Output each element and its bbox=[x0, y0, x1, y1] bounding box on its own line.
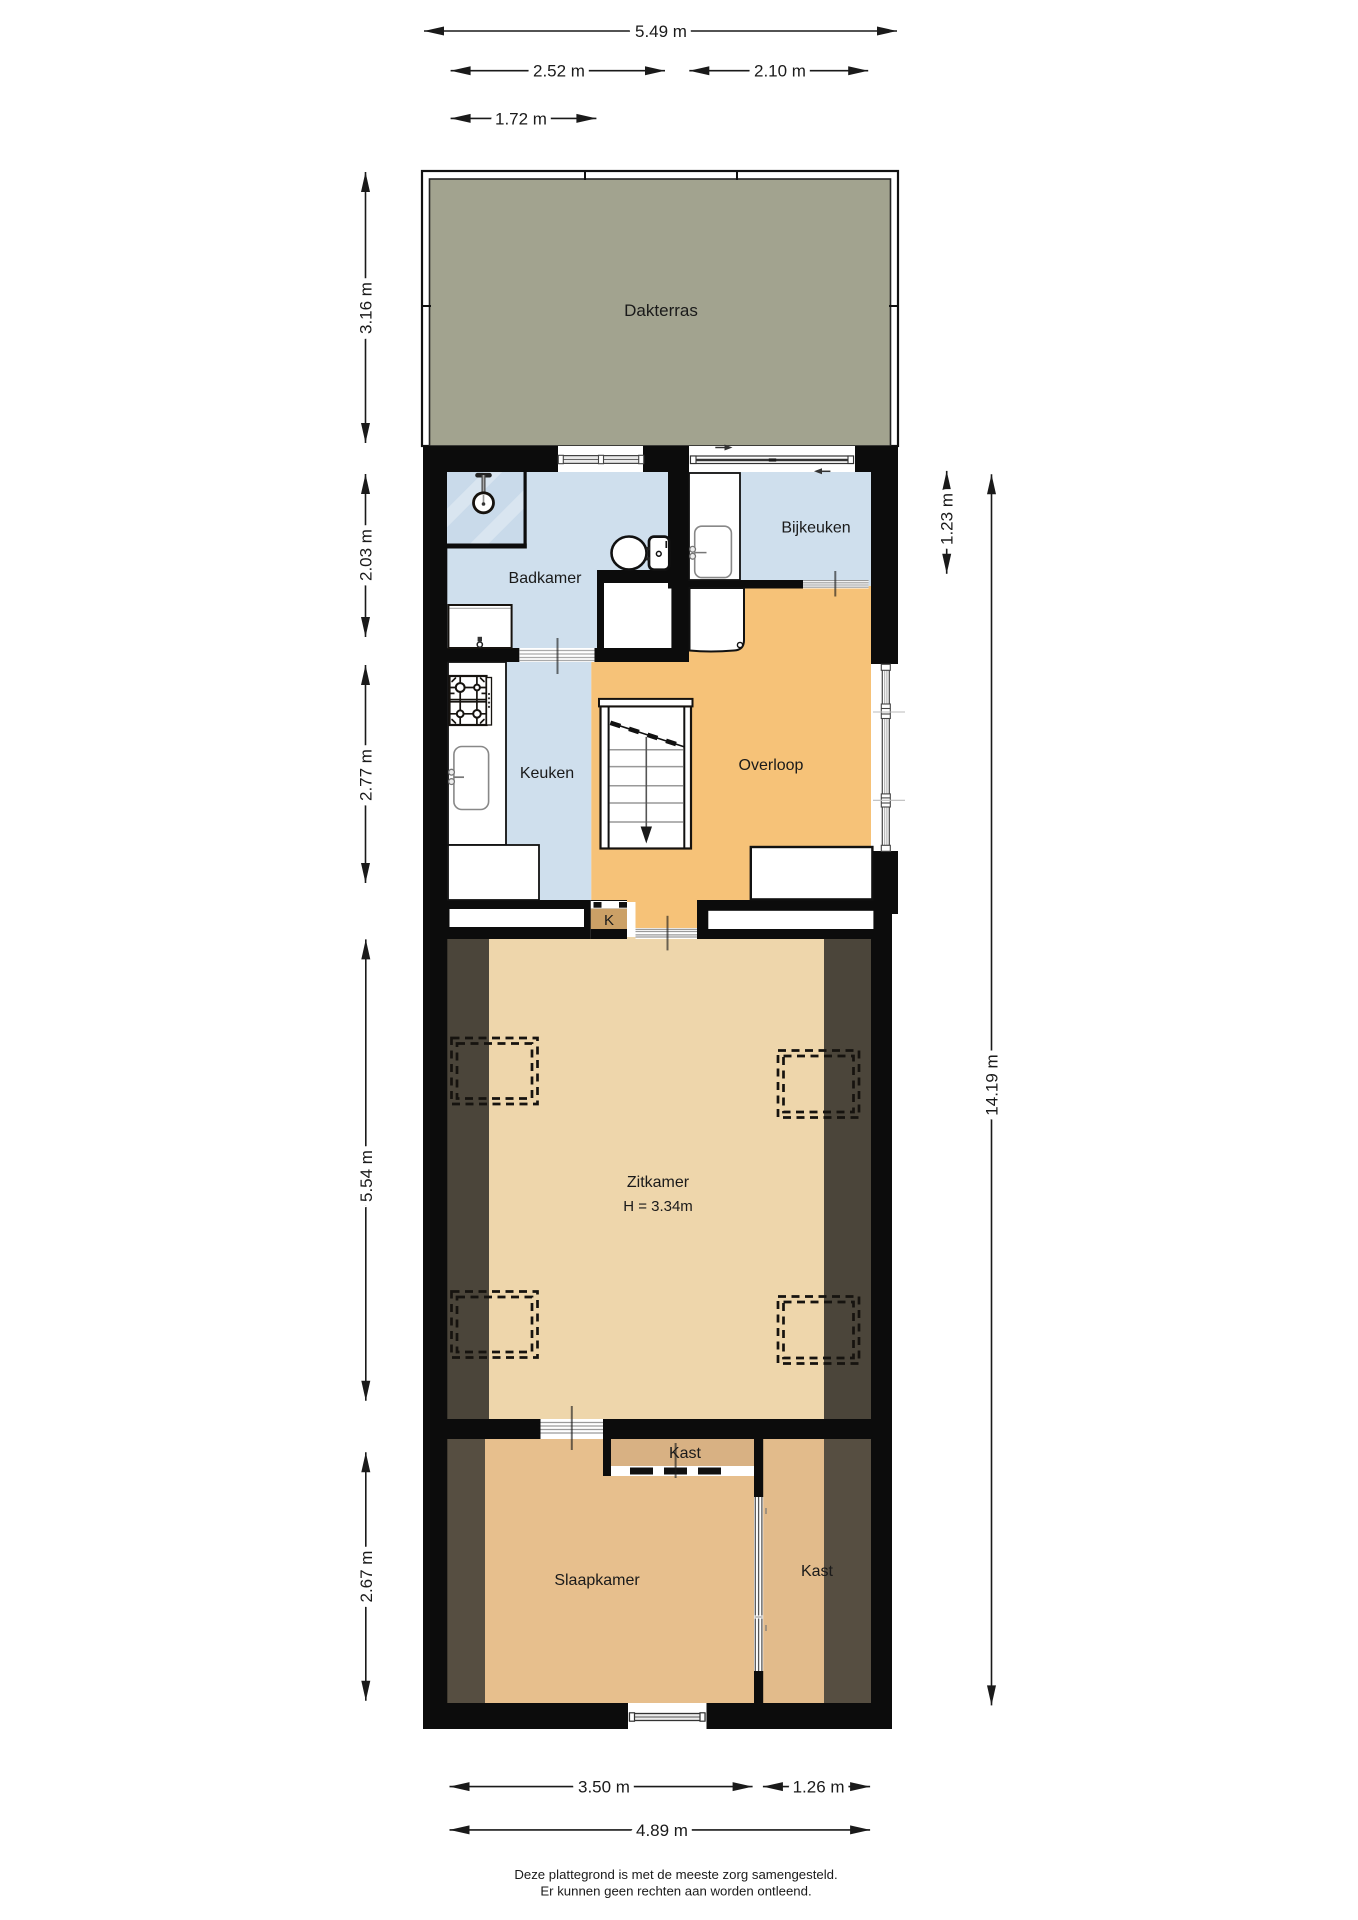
svg-text:Er kunnen geen rechten aan wor: Er kunnen geen rechten aan worden ontlee… bbox=[540, 1884, 811, 1899]
svg-text:5.54 m: 5.54 m bbox=[357, 1150, 376, 1202]
svg-text:Overloop: Overloop bbox=[739, 757, 804, 774]
svg-text:2.03 m: 2.03 m bbox=[357, 529, 376, 581]
svg-text:Bijkeuken: Bijkeuken bbox=[781, 520, 850, 537]
svg-text:3.16 m: 3.16 m bbox=[357, 282, 376, 334]
svg-text:5.49 m: 5.49 m bbox=[635, 22, 687, 41]
svg-text:2.67 m: 2.67 m bbox=[357, 1551, 376, 1603]
svg-text:K: K bbox=[604, 912, 614, 929]
svg-text:Badkamer: Badkamer bbox=[509, 570, 583, 587]
svg-text:Kast: Kast bbox=[669, 1445, 702, 1462]
svg-text:2.77 m: 2.77 m bbox=[357, 749, 376, 801]
svg-text:Kast: Kast bbox=[801, 1563, 834, 1580]
svg-text:Slaapkamer: Slaapkamer bbox=[554, 1572, 640, 1589]
svg-text:4.89 m: 4.89 m bbox=[636, 1821, 688, 1840]
svg-text:3.50 m: 3.50 m bbox=[578, 1778, 630, 1797]
svg-text:1.72 m: 1.72 m bbox=[495, 109, 547, 128]
svg-text:Dakterras: Dakterras bbox=[624, 301, 698, 320]
svg-text:H = 3.34m: H = 3.34m bbox=[623, 1198, 693, 1215]
svg-text:2.52 m: 2.52 m bbox=[533, 62, 585, 81]
svg-text:1.23 m: 1.23 m bbox=[938, 493, 957, 545]
svg-text:Keuken: Keuken bbox=[520, 765, 574, 782]
svg-text:1.26 m: 1.26 m bbox=[793, 1778, 845, 1797]
svg-text:14.19 m: 14.19 m bbox=[983, 1054, 1002, 1115]
svg-text:Zitkamer: Zitkamer bbox=[627, 1174, 690, 1191]
svg-text:Deze plattegrond is met de mee: Deze plattegrond is met de meeste zorg s… bbox=[514, 1867, 837, 1882]
svg-text:2.10 m: 2.10 m bbox=[754, 62, 806, 81]
